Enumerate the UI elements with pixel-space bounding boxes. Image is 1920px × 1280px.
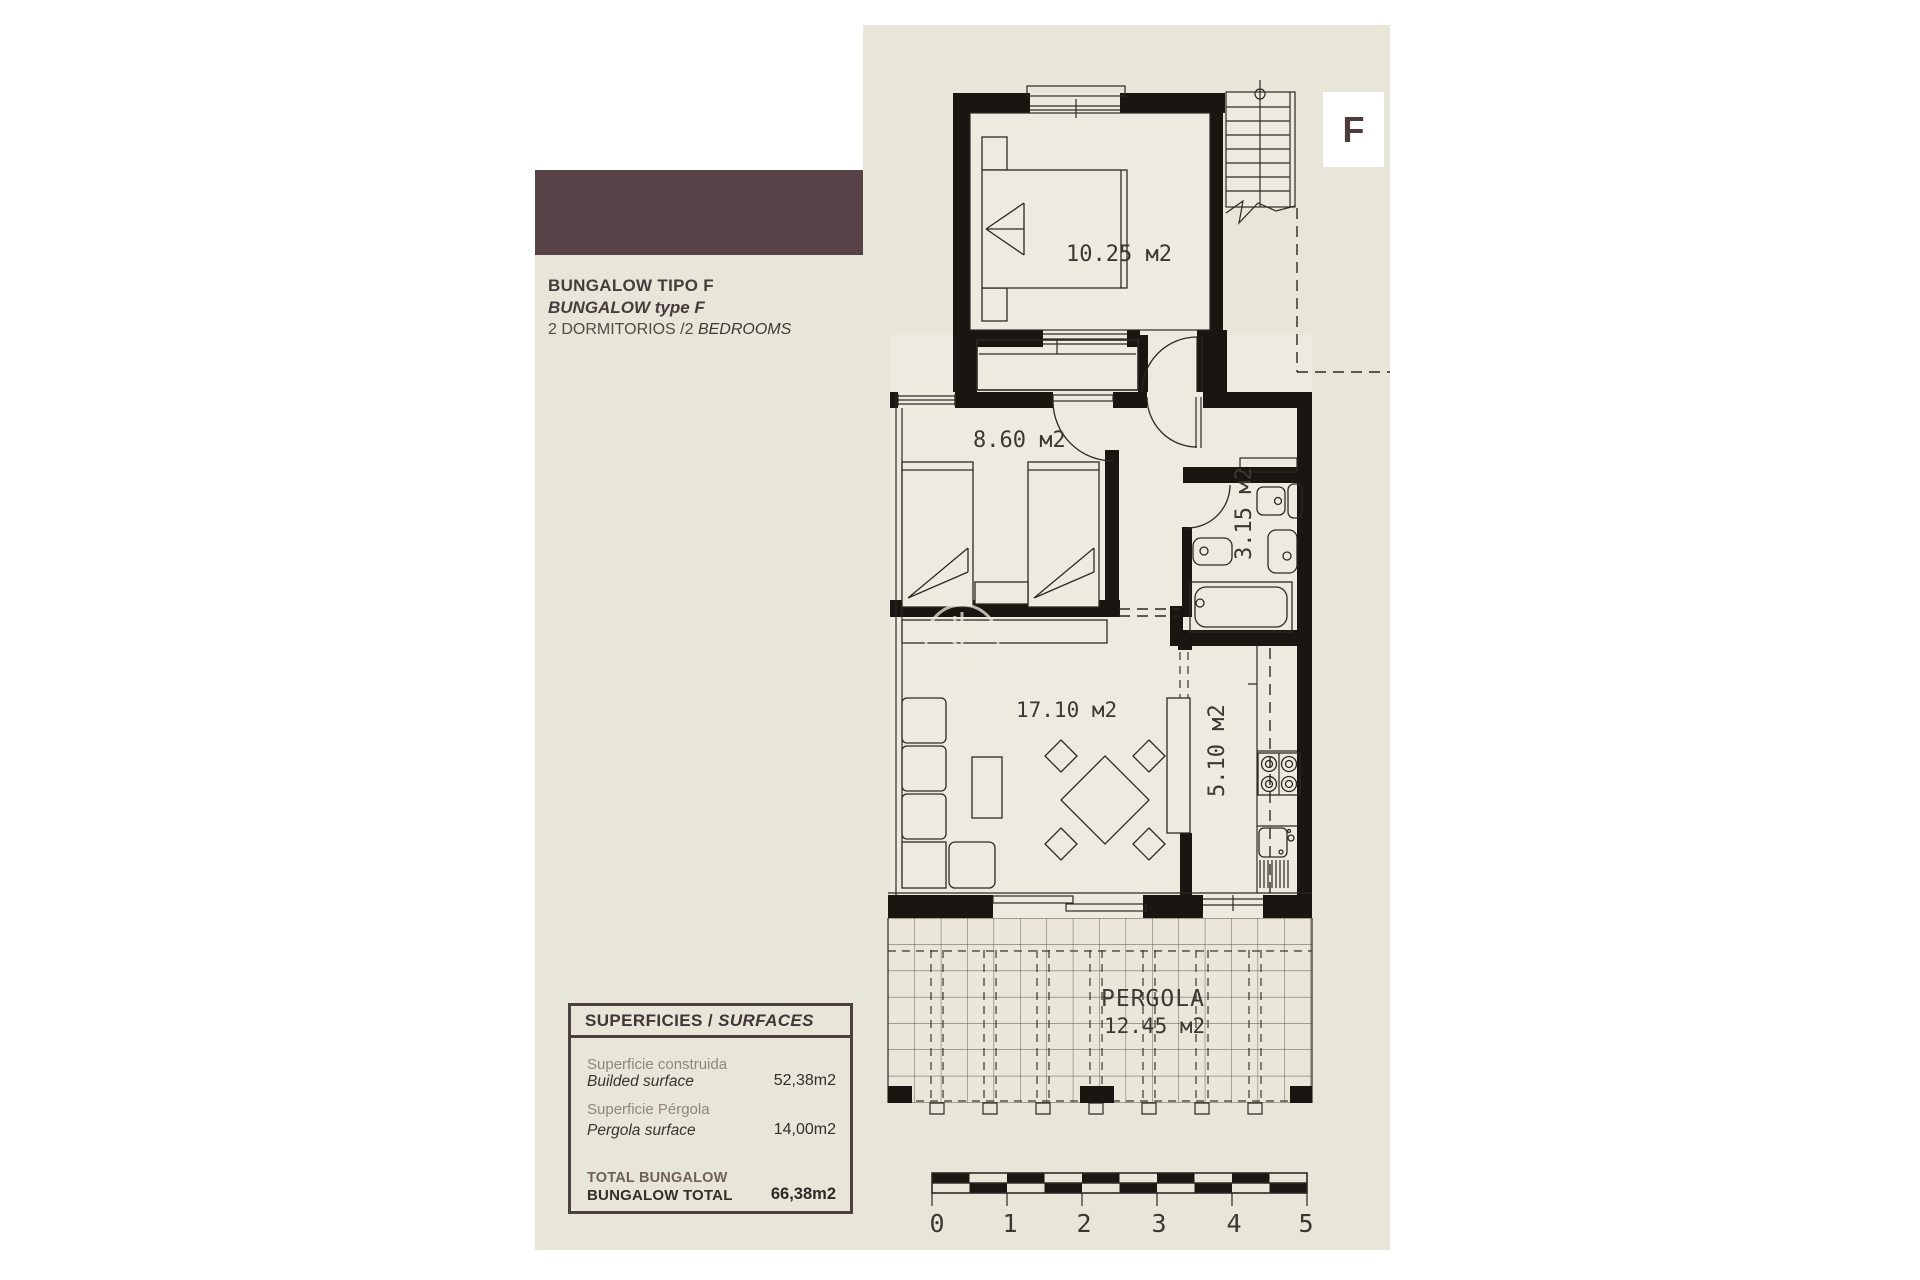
room-label-pergola-area: 12.45 м2 — [1104, 1014, 1205, 1038]
built-label-en: Builded surface — [587, 1073, 727, 1091]
pergola-label-en: Pergola surface — [587, 1122, 710, 1140]
surfaces-box: SUPERFICIES / SURFACES Superficie constr… — [568, 1003, 853, 1214]
total-value: 66,38m2 — [771, 1185, 836, 1204]
dining-set — [1045, 740, 1165, 860]
scale-label-1: 1 — [1002, 1209, 1017, 1238]
nightstand — [982, 288, 1007, 321]
sofa-cushion — [902, 746, 946, 791]
scale-label-3: 3 — [1151, 1209, 1166, 1238]
console — [1167, 698, 1190, 833]
surface-row-total: TOTAL BUNGALOW BUNGALOW TOTAL 66,38m2 — [587, 1170, 836, 1205]
brochure-page: BUNGALOW TIPO F BUNGALOW type F 2 DORMIT… — [0, 0, 1920, 1280]
surfaces-header-en: SURFACES — [718, 1011, 814, 1030]
coffee-table — [972, 757, 1002, 818]
scale-bar: 0 1 2 3 4 5 — [929, 1173, 1313, 1238]
nightstand — [982, 137, 1007, 170]
scale-label-2: 2 — [1076, 1209, 1091, 1238]
sideboard — [902, 620, 1107, 643]
scale-label-0: 0 — [929, 1209, 944, 1238]
total-label-es: TOTAL BUNGALOW — [587, 1170, 733, 1187]
built-label-es: Superficie construida — [587, 1056, 727, 1073]
pergola — [888, 918, 1312, 1114]
surfaces-header-es: SUPERFICIES / — [585, 1011, 718, 1030]
surface-row-pergola: Superficie Pérgola Pergola surface 14,00… — [587, 1101, 836, 1140]
sofa-cushion — [902, 698, 946, 743]
total-label-en: BUNGALOW TOTAL — [587, 1187, 733, 1205]
room-label-bathroom: 3.15 м2 — [1232, 467, 1257, 560]
nightstand — [975, 582, 1028, 604]
pergola-label-es: Superficie Pérgola — [587, 1101, 710, 1118]
scale-label-5: 5 — [1298, 1209, 1313, 1238]
sofa-chaise — [949, 842, 995, 888]
room-label-pergola: PERGOLA — [1101, 986, 1205, 1012]
room-label-living: 17.10 м2 — [1016, 698, 1117, 722]
room-label-bedroom1: 10.25 м2 — [1066, 242, 1172, 267]
surfaces-header: SUPERFICIES / SURFACES — [571, 1006, 850, 1038]
scale-label-4: 4 — [1226, 1209, 1241, 1238]
surface-row-built: Superficie construida Builded surface 52… — [587, 1056, 836, 1091]
room-label-bedroom2: 8.60 м2 — [973, 428, 1066, 453]
sofa-cushion — [902, 794, 946, 839]
sofa-corner — [902, 842, 946, 888]
built-value: 52,38m2 — [774, 1072, 836, 1090]
room-label-kitchen: 5.10 м2 — [1205, 704, 1230, 797]
floorplan-svg: 10.25 м2 8.60 м2 3.15 м2 17.10 м2 5.10 м… — [0, 0, 1920, 1280]
pergola-value: 14,00m2 — [774, 1121, 836, 1139]
